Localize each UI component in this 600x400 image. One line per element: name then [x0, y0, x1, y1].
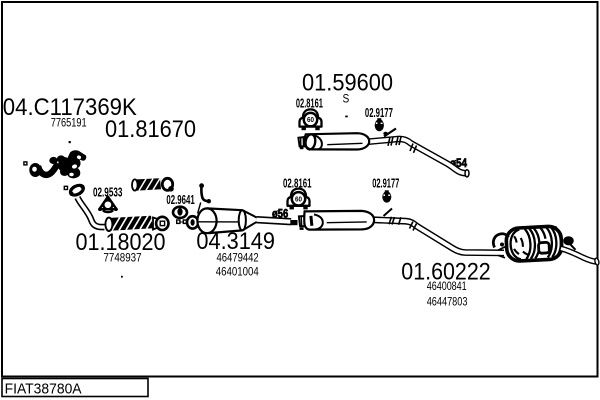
- svg-text:02.9177: 02.9177: [365, 105, 393, 120]
- svg-text:46400841: 46400841: [427, 281, 467, 293]
- svg-text:S: S: [343, 91, 350, 105]
- svg-text:46401004: 46401004: [216, 266, 259, 278]
- svg-text:60: 60: [295, 194, 302, 203]
- svg-text:01.81670: 01.81670: [105, 116, 196, 143]
- svg-text:7748937: 7748937: [104, 252, 142, 264]
- svg-text:FIAT38780A: FIAT38780A: [5, 382, 82, 398]
- svg-text:7765191: 7765191: [51, 118, 87, 130]
- svg-text:46447803: 46447803: [427, 297, 468, 309]
- svg-text:02.9641: 02.9641: [166, 192, 194, 207]
- svg-text:02.9177: 02.9177: [372, 176, 399, 191]
- svg-text:46479442: 46479442: [217, 252, 259, 264]
- svg-text:60: 60: [307, 115, 314, 124]
